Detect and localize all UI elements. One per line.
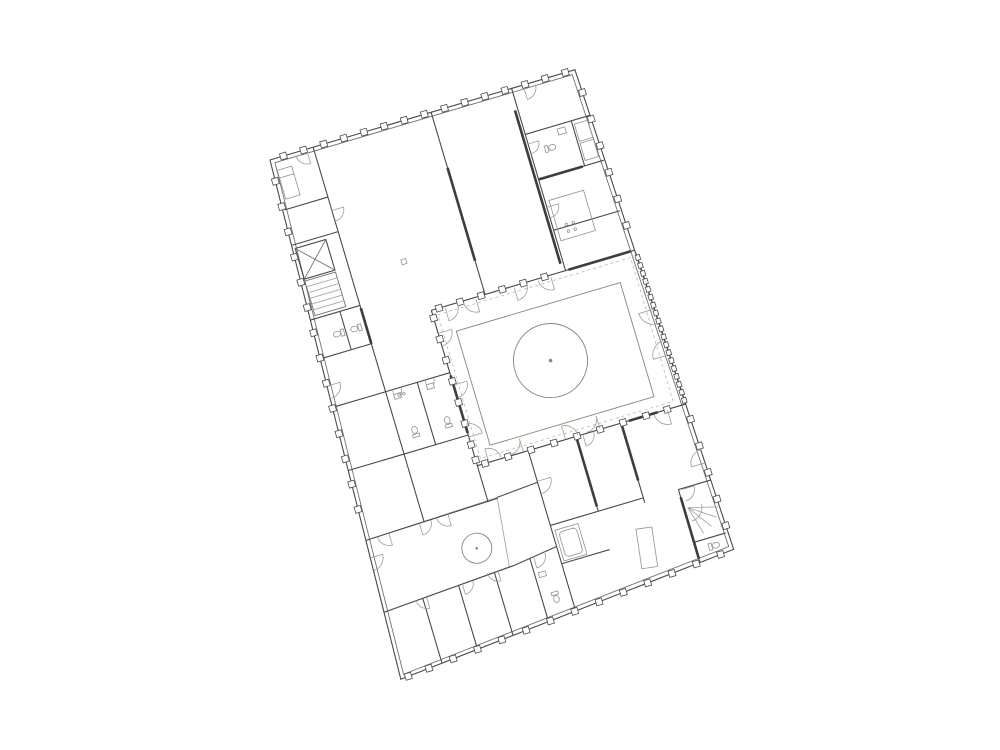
- window-pier: [456, 298, 464, 306]
- window-pier: [692, 560, 700, 568]
- garden-wall-module: [669, 357, 675, 363]
- garden-wall-module: [676, 381, 682, 387]
- garden-wall-module: [645, 286, 651, 292]
- window-pier: [400, 116, 408, 124]
- window-pier: [668, 569, 676, 577]
- window-pier: [474, 645, 482, 653]
- garden-wall-module: [679, 389, 685, 395]
- window-pier: [340, 134, 348, 142]
- window-pier: [461, 98, 469, 106]
- window-pier: [619, 419, 627, 427]
- window-pier: [498, 285, 506, 293]
- window-pier: [521, 80, 529, 88]
- window-pier: [596, 142, 604, 150]
- window-pier: [404, 672, 412, 680]
- window-pier: [614, 195, 622, 203]
- garden-wall-module: [638, 262, 644, 268]
- garden-wall-module: [674, 373, 680, 379]
- floor-plan-page: [0, 0, 1000, 750]
- window-pier: [335, 430, 343, 438]
- window-pier: [271, 177, 279, 185]
- garden-wall-module: [650, 302, 656, 308]
- window-pier: [449, 655, 457, 663]
- window-pier: [300, 146, 308, 154]
- window-pier: [472, 456, 480, 464]
- window-pier: [519, 279, 527, 287]
- hall-column: [401, 259, 407, 265]
- window-pier: [316, 354, 324, 362]
- window-pier: [442, 356, 450, 364]
- window-pier: [541, 273, 549, 281]
- window-pier: [348, 480, 356, 488]
- window-pier: [310, 329, 318, 337]
- window-pier: [455, 398, 463, 406]
- garden-wall-module: [681, 397, 687, 403]
- window-pier: [329, 404, 337, 412]
- window-pier: [420, 110, 428, 118]
- garden-wall-module: [666, 350, 672, 356]
- garden-wall-module: [661, 334, 667, 340]
- window-pier: [695, 442, 703, 450]
- window-pier: [571, 607, 579, 615]
- window-pier: [595, 598, 603, 606]
- window-pier: [441, 104, 449, 112]
- garden-wall-module: [656, 318, 662, 324]
- window-pier: [354, 505, 362, 513]
- window-pier: [448, 377, 456, 385]
- window-pier: [481, 459, 489, 467]
- window-pier: [467, 441, 475, 449]
- window-pier: [322, 379, 330, 387]
- garden-wall-module: [640, 270, 646, 276]
- window-pier: [704, 468, 712, 476]
- window-pier: [561, 69, 569, 77]
- window-pier: [546, 617, 554, 625]
- window-pier: [435, 304, 443, 312]
- window-pier: [284, 228, 292, 236]
- window-pier: [279, 152, 287, 160]
- window-pier: [527, 446, 535, 454]
- window-pier: [425, 664, 433, 672]
- garden-wall-module: [653, 310, 659, 316]
- window-pier: [619, 588, 627, 596]
- window-pier: [360, 128, 368, 136]
- window-pier: [477, 292, 485, 300]
- window-pier: [504, 453, 512, 461]
- garden-wall-module: [663, 342, 669, 348]
- window-pier: [297, 278, 305, 286]
- window-pier: [430, 314, 438, 322]
- window-pier: [605, 168, 613, 176]
- window-pier: [278, 203, 286, 211]
- window-pier: [622, 221, 630, 229]
- window-pier: [498, 636, 506, 644]
- window-pier: [320, 140, 328, 148]
- garden-wall-module: [643, 278, 649, 284]
- window-pier: [550, 439, 558, 447]
- window-pier: [501, 86, 509, 94]
- window-pier: [481, 92, 489, 100]
- window-pier: [522, 626, 530, 634]
- window-pier: [303, 304, 311, 312]
- window-pier: [341, 455, 349, 463]
- floor-plan-svg: [0, 0, 1000, 750]
- window-pier: [436, 335, 444, 343]
- window-pier: [713, 495, 721, 503]
- window-pier: [642, 412, 650, 420]
- garden-wall-module: [671, 365, 677, 371]
- window-pier: [717, 550, 725, 558]
- window-pier: [578, 89, 586, 97]
- window-pier: [596, 425, 604, 433]
- window-pier: [644, 579, 652, 587]
- window-pier: [687, 415, 695, 423]
- window-pier: [663, 405, 671, 413]
- garden-wall-module: [658, 326, 664, 332]
- garden-wall-module: [635, 254, 641, 260]
- window-pier: [722, 522, 730, 530]
- window-pier: [541, 75, 549, 83]
- garden-wall-module: [648, 294, 654, 300]
- window-pier: [380, 122, 388, 130]
